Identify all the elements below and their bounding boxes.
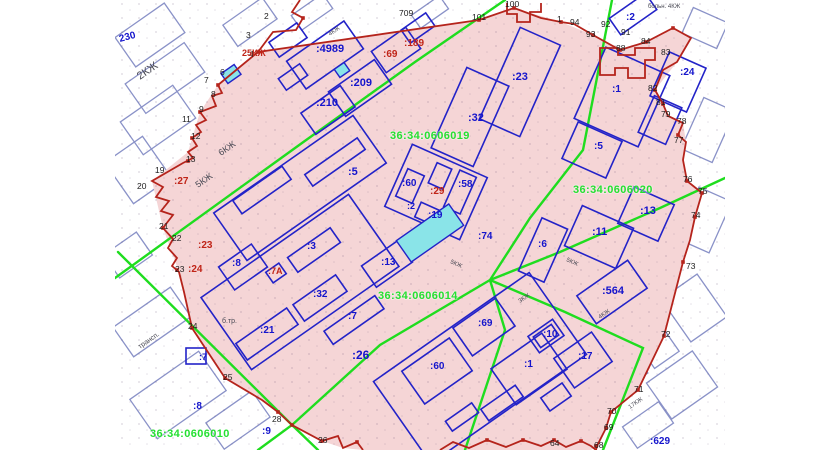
- parcel-label-red: :29: [430, 186, 445, 197]
- vertex-number-label: 11: [182, 114, 191, 124]
- vertex-number-label: 24: [188, 321, 198, 331]
- building-label: б.тр.: [222, 317, 237, 325]
- parcel-label-blue: :8: [193, 401, 202, 412]
- vertex-number-label: 3: [246, 30, 251, 40]
- vertex-number-label: 71: [634, 384, 644, 394]
- parcel-label-blue: :74: [478, 231, 493, 242]
- parcel-label-red: :23: [198, 240, 213, 251]
- parcel-label-blue: :10: [543, 329, 558, 340]
- vertex-number-label: 93: [586, 29, 596, 39]
- parcel-label-blue: :9: [262, 426, 271, 437]
- parcel-label-blue: :564: [602, 285, 625, 297]
- parcel-label-blue: :69: [478, 318, 493, 329]
- boundary-vertex-dot: [485, 438, 489, 442]
- parcel-label-blue: :60: [430, 361, 445, 372]
- vertex-number-label: 82: [648, 83, 658, 93]
- parcel-label-blue: :60: [402, 178, 417, 189]
- vertex-number-label: 94: [570, 17, 580, 27]
- parcel-label-blue: :5: [348, 166, 358, 178]
- vertex-number-label: 79: [661, 109, 671, 119]
- parcel-label-blue: :209: [350, 77, 372, 89]
- vertex-number-label: 68: [594, 440, 604, 450]
- vertex-number-label: 72: [661, 329, 671, 339]
- parcel-label-blue: :13: [640, 205, 656, 217]
- parcel-label-blue: :21: [260, 325, 275, 336]
- parcel-label-blue: :8: [232, 258, 241, 269]
- parcel-label-blue: :58: [458, 179, 473, 190]
- parcel-label-blue: :5: [594, 141, 603, 152]
- vertex-number-label: 2: [264, 11, 269, 21]
- boundary-vertex-dot: [290, 423, 294, 427]
- parcel-label-blue: :11: [592, 226, 607, 238]
- vertex-number-label: 70: [607, 406, 617, 416]
- vertex-number-label: 21: [159, 221, 169, 231]
- vertex-number-label: 84: [641, 36, 651, 46]
- building-label: больн. 4КЖ: [648, 4, 681, 10]
- vertex-number-label: 100: [505, 0, 519, 9]
- vertex-number-label: 28: [272, 414, 282, 424]
- parcel-label-blue: :17: [578, 351, 593, 362]
- parcel-label-red: :189: [404, 38, 424, 49]
- vertex-number-label: 81: [656, 97, 666, 107]
- quarter-code-label: 36:34:0606020: [573, 184, 653, 196]
- vertex-number-label: 9: [199, 104, 204, 114]
- vertex-number-label: 77: [674, 135, 684, 145]
- vertex-number-label: 91: [621, 27, 631, 37]
- quarter-code-label: 36:34:0606019: [390, 130, 470, 142]
- boundary-vertex-dot: [579, 439, 583, 443]
- map-content: 2КЖ5КЖ6КЖ4КЖбольн. 4КЖтрансп.б.тр.17КЖ5К…: [104, 0, 735, 450]
- parcel-label-blue: :24: [680, 67, 695, 78]
- vertex-number-label: 709: [399, 8, 413, 18]
- vertex-number-label: 75: [698, 186, 708, 196]
- boundary-vertex-dot: [671, 26, 675, 30]
- vertex-number-label: 7: [204, 75, 209, 85]
- vertex-number-label: 23: [175, 264, 185, 274]
- cadastral-map-svg[interactable]: 2КЖ5КЖ6КЖ4КЖбольн. 4КЖтрансп.б.тр.17КЖ5К…: [0, 0, 840, 450]
- parcel-label-red: :7А: [268, 266, 283, 276]
- vertex-number-label: 83: [661, 47, 671, 57]
- vertex-number-label: 26: [318, 435, 328, 445]
- parcel-label-blue: :26: [352, 348, 370, 362]
- vertex-number-label: 76: [683, 174, 693, 184]
- vertex-number-label: 12: [191, 131, 201, 141]
- parcel-label-blue: :4989: [316, 43, 344, 55]
- parcel-label-blue: :19: [428, 210, 443, 221]
- vertex-number-label: 6: [220, 67, 225, 77]
- parcel-label-blue: :7: [199, 352, 207, 362]
- vertex-number-label: 73: [686, 261, 696, 271]
- parcel-label-blue: :629: [650, 436, 670, 447]
- parcel-label-red: :27: [174, 176, 189, 187]
- parcel-label-red: :69: [383, 49, 398, 60]
- parcel-label-blue: :1: [524, 359, 533, 370]
- parcel-label-blue: :13: [381, 257, 396, 268]
- vertex-number-label: 74: [691, 210, 701, 220]
- parcel-label-blue: :3: [307, 241, 316, 252]
- vertex-number-label: 13: [186, 154, 196, 164]
- vertex-number-label: 69: [604, 422, 614, 432]
- quarter-code-label: 36:34:0606010: [150, 428, 230, 440]
- parcel-label-blue: :7: [348, 311, 357, 322]
- vertex-number-label: 78: [677, 116, 687, 126]
- boundary-vertex-dot: [521, 438, 525, 442]
- parcel-label-blue: :2: [407, 201, 415, 211]
- vertex-number-label: 88: [616, 43, 626, 53]
- vertex-number-label: 101: [472, 12, 486, 22]
- vertex-number-label: 1: [557, 14, 562, 24]
- quarter-code-label: 36:34:0606014: [378, 290, 458, 302]
- boundary-vertex-dot: [216, 83, 220, 87]
- vertex-number-label: 92: [601, 19, 611, 29]
- parcel-label-blue: :2: [626, 12, 635, 23]
- vertex-number-label: 19: [155, 165, 165, 175]
- boundary-vertex-dot: [355, 440, 359, 444]
- map-viewport[interactable]: 2КЖ5КЖ6КЖ4КЖбольн. 4КЖтрансп.б.тр.17КЖ5К…: [0, 0, 840, 450]
- vertex-number-label: 22: [172, 233, 182, 243]
- vertex-number-label: 64: [550, 438, 560, 448]
- parcel-label-blue: :1: [612, 84, 621, 95]
- parcel-label-blue: :6: [538, 239, 547, 250]
- vertex-number-label: 25: [223, 372, 233, 382]
- parcel-label-blue: :32: [313, 289, 328, 300]
- vertex-number-label: 20: [137, 181, 147, 191]
- boundary-vertex-dot: [681, 260, 685, 264]
- parcel-label-blue: :23: [512, 71, 528, 83]
- vertex-number-label: 8: [211, 89, 216, 99]
- parcel-label-blue: :32: [468, 112, 484, 124]
- parcel-label-blue: :210: [316, 97, 338, 109]
- boundary-vertex-dot: [301, 16, 305, 20]
- parcel-label-red: 25КЖ: [242, 48, 267, 58]
- parcel-label-red: :24: [188, 264, 203, 275]
